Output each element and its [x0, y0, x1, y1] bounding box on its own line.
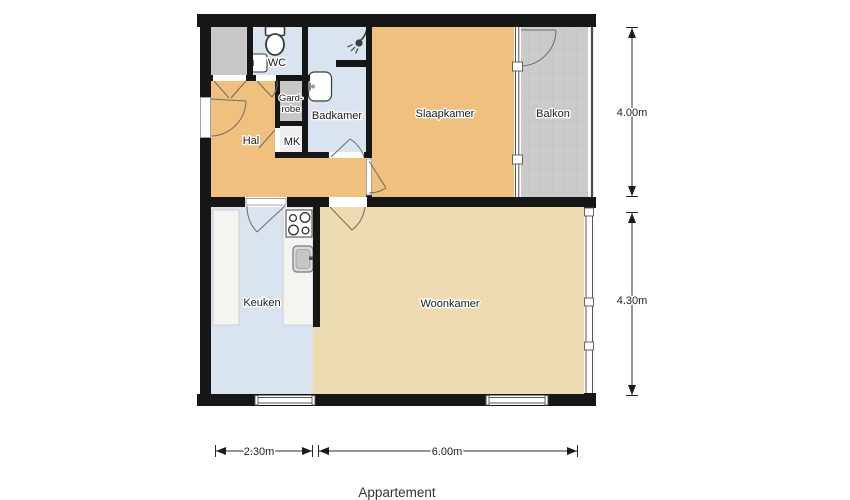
- badkamer-label: Badkamer: [312, 110, 362, 122]
- balkon-railing: [588, 27, 593, 197]
- dimension-right-bottom-label: 4.30m: [617, 295, 648, 307]
- wc-label: WC: [268, 57, 286, 69]
- window-slaapkamer-balkon: [513, 27, 523, 197]
- kitchen-counter-left: [213, 210, 239, 325]
- toilet-icon: [266, 27, 285, 56]
- stove-icon: [286, 210, 312, 237]
- wall-shower-partition: [336, 60, 372, 67]
- window-woonkamer-bottom: [486, 396, 548, 406]
- wall-keuken-woonkamer: [313, 197, 320, 327]
- window-keuken-bottom: [255, 396, 315, 406]
- floorplan-canvas: WC Gard- robe Badkamer Hal MK Slaapkamer…: [0, 0, 850, 500]
- entrance-door: [201, 98, 211, 138]
- room-storage-floor: [207, 22, 250, 78]
- balkon-label: Balkon: [536, 108, 570, 120]
- room-woonkamer-floor-ext: [313, 327, 321, 396]
- window-woonkamer-right: [584, 208, 596, 393]
- dimension-right-bottom: 4.30m: [617, 213, 648, 396]
- keuken-label: Keuken: [243, 297, 280, 309]
- garderobe-label-line1: Gard-: [279, 93, 303, 104]
- floorplan-drawing: WC Gard- robe Badkamer Hal MK Slaapkamer…: [0, 0, 850, 500]
- dimension-right-top: 4.00m: [617, 28, 648, 197]
- dimension-right-top-label: 4.00m: [617, 107, 648, 119]
- dimension-bottom-right: 6.00m: [318, 445, 578, 458]
- keuken-door: [246, 199, 286, 206]
- dimension-bottom-left-label: 2.30m: [244, 446, 275, 458]
- woonkamer-label: Woonkamer: [420, 298, 479, 310]
- slaapkamer-label: Slaapkamer: [416, 108, 475, 120]
- hal-label: Hal: [243, 135, 260, 147]
- garderobe-label-line2: robe: [281, 104, 300, 115]
- dimension-bottom-right-label: 6.00m: [432, 446, 463, 458]
- plan-title: Appartement: [358, 485, 436, 500]
- mk-label: MK: [284, 136, 301, 148]
- dimension-bottom-left: 2.30m: [215, 445, 313, 458]
